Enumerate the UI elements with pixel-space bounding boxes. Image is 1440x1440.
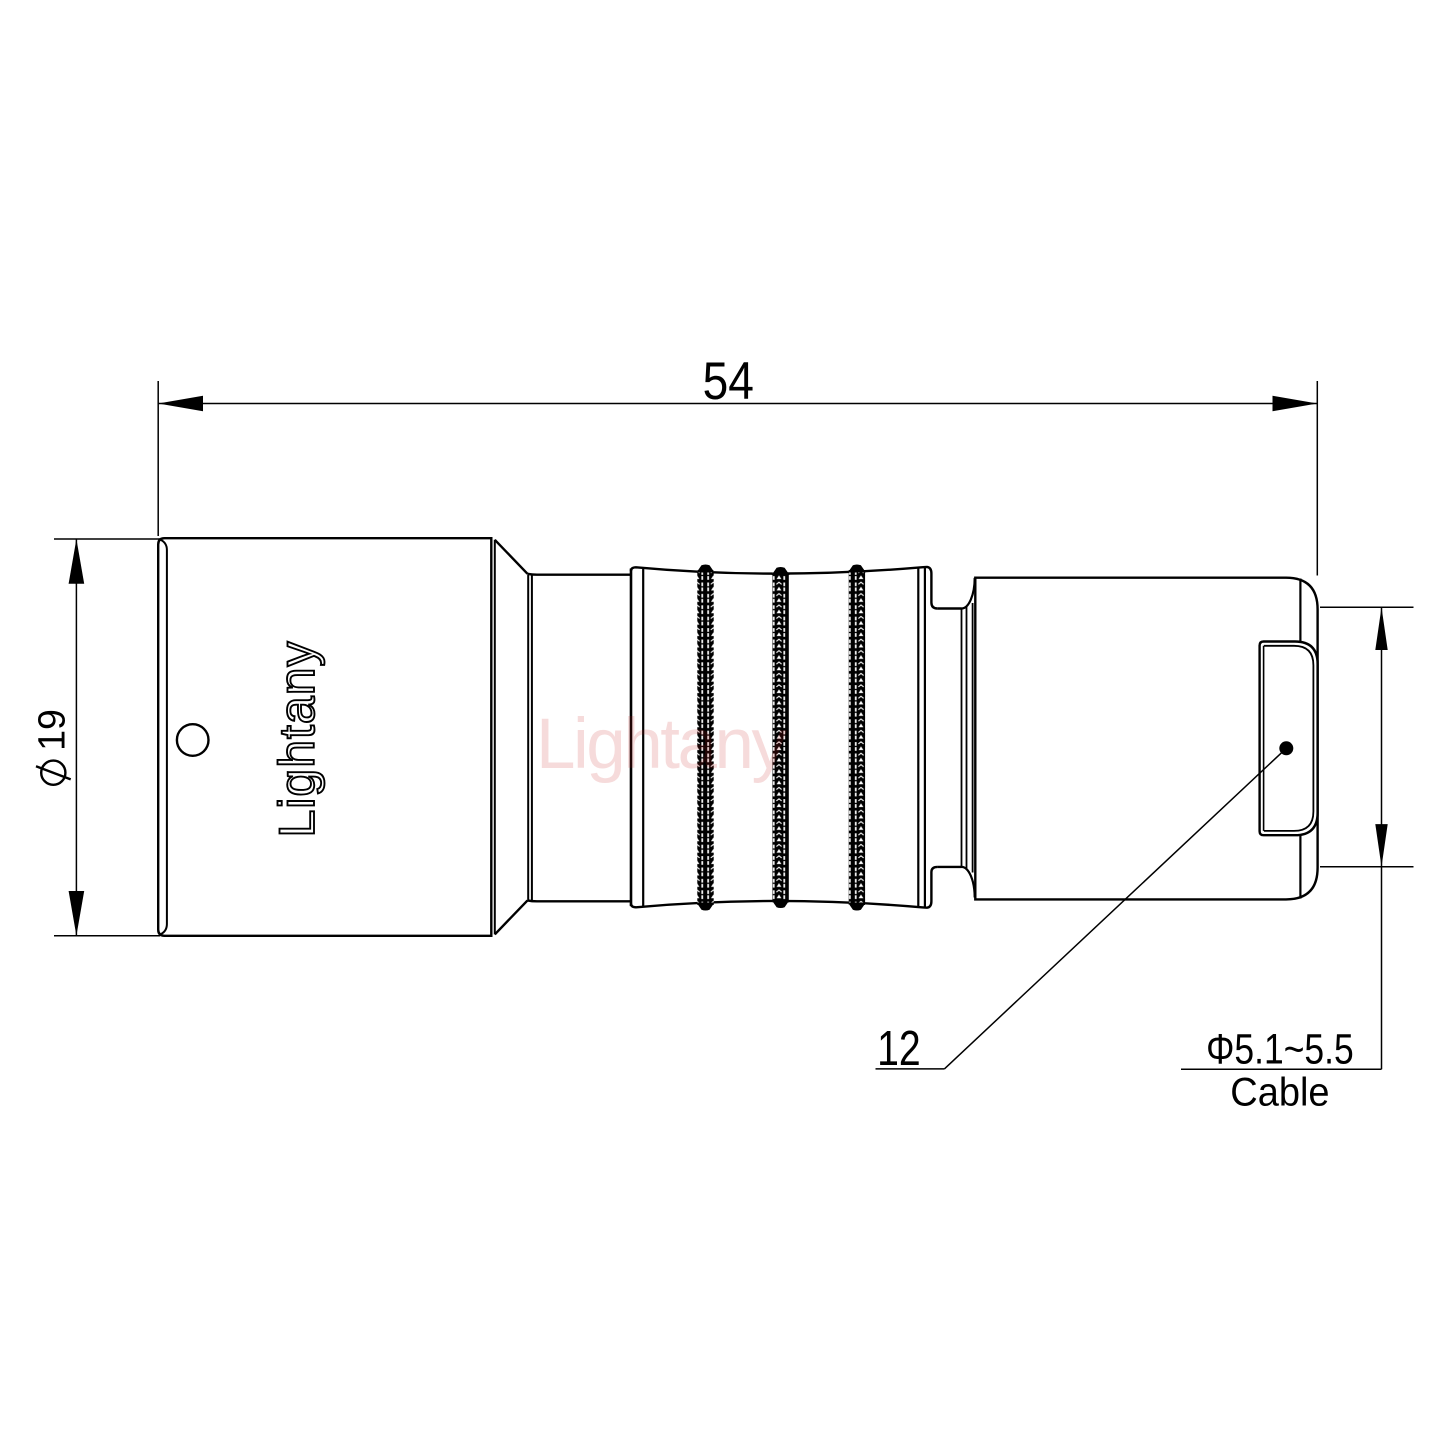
svg-text:Lightany: Lightany	[269, 640, 325, 837]
svg-text:Φ5.1~5.5: Φ5.1~5.5	[1206, 1026, 1354, 1073]
svg-text:Lightany: Lightany	[536, 705, 788, 784]
svg-text:12: 12	[877, 1022, 921, 1076]
svg-text:54: 54	[703, 351, 754, 411]
svg-text:Cable: Cable	[1230, 1071, 1329, 1115]
svg-text:19: 19	[31, 709, 73, 751]
